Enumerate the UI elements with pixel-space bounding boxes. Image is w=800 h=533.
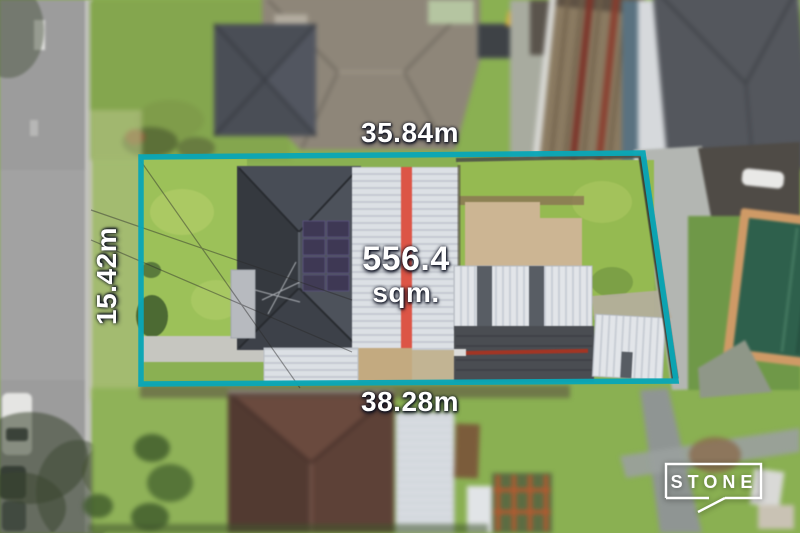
rear-wall — [350, 348, 412, 382]
aerial-scene — [0, 0, 800, 533]
solar-array-neighbour — [478, 24, 512, 58]
fence-shadow — [140, 385, 570, 398]
pergola — [492, 473, 552, 533]
logo-text: STONE — [671, 472, 758, 492]
pale-green-roof — [428, 0, 474, 24]
neighbour-roof-brown — [228, 393, 394, 533]
carport-roof — [396, 412, 454, 533]
garden-bush — [141, 262, 161, 278]
stone-agency-logo: STONE — [656, 456, 771, 518]
hedge-strip — [88, 524, 488, 533]
small-white-shed — [592, 314, 665, 380]
road-line-marking — [30, 120, 38, 136]
pavers — [412, 350, 458, 382]
red-roof-stripe — [401, 167, 412, 350]
road-patch — [0, 170, 90, 380]
grass-patch — [150, 189, 214, 235]
blue-fence — [622, 0, 638, 162]
grass-patch — [591, 267, 633, 297]
aerial-property-photo: 35.84m 15.42m 38.28m 556.4 sqm. STONE — [0, 0, 800, 533]
porch-roof — [231, 270, 255, 338]
front-garage-roof — [264, 348, 358, 382]
garden-shed-brown — [454, 424, 480, 479]
